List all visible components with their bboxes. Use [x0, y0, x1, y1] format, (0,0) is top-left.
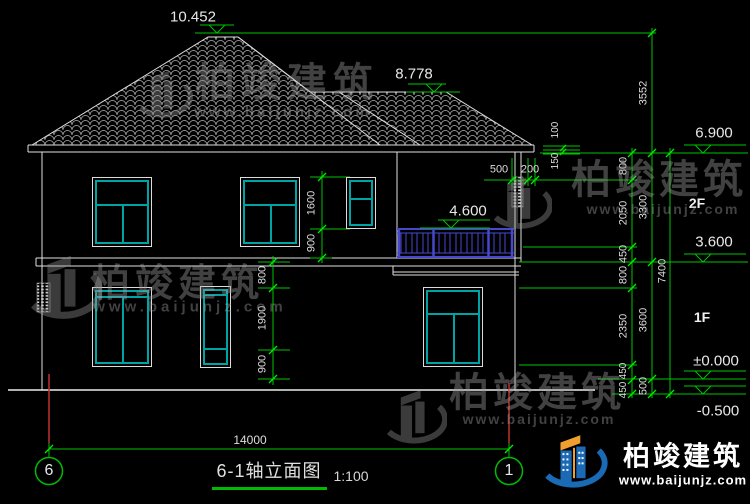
watermark-brand: 柏竣建筑: [92, 265, 264, 303]
dim-overall-span: 14000: [233, 434, 266, 446]
window-1f-right: [423, 287, 483, 367]
watermark-url: www.baijunjz.com: [194, 105, 371, 120]
footer-logo-brand: 柏竣建筑: [623, 444, 743, 471]
title-underline: [212, 487, 327, 490]
elevation-site: -0.500: [697, 404, 740, 419]
window-mullion-h: [350, 198, 372, 200]
window-mullion-v: [270, 206, 272, 242]
footer-logo-icon: [536, 432, 614, 498]
footer-logo-url: www.baijunjz.com: [619, 474, 747, 487]
watermark-url: www.baijunjz.com: [587, 202, 740, 216]
watermark-url: www.baijunjz.com: [93, 300, 286, 315]
window-mullion-h: [204, 348, 227, 350]
dim-eave-edge-0: 100: [551, 122, 561, 139]
dim-right-mid-3: 500: [639, 377, 650, 395]
window-2f-left: [92, 177, 152, 247]
watermark-brand: 柏竣建筑: [571, 160, 747, 200]
dim-window1f-2: 900: [258, 355, 269, 373]
drawing-scale: 1:100: [333, 469, 368, 483]
dim-right-mid-2: 3600: [639, 308, 650, 332]
watermark-brand: 柏竣建筑: [449, 373, 625, 413]
axis-bubble-1: 1: [505, 463, 514, 479]
watermark-brand: 柏竣建筑: [195, 63, 379, 103]
dim-right-mid-0: 3552: [639, 81, 650, 105]
elevation-eave: 6.900: [695, 126, 733, 141]
axis-bubble-6: 6: [45, 463, 54, 479]
window-mullion-v: [453, 315, 455, 362]
drawing-title: 6-1轴立面图: [216, 462, 321, 480]
dim-right-total: 7400: [658, 259, 669, 283]
window-frame: [349, 180, 373, 226]
dim-window2f-1: 900: [307, 234, 318, 252]
elevation-ridge2: 8.778: [395, 67, 433, 82]
watermark-logo-left: [24, 250, 102, 332]
watermark-logo-right: [488, 166, 552, 246]
window-mullion-v: [122, 206, 124, 242]
dim-window2f-0: 1600: [307, 191, 318, 215]
elevation-peak: 10.452: [170, 10, 216, 25]
dim-right-inner-3: 800: [619, 266, 630, 284]
dim-eave-edge-1: 150: [551, 153, 561, 170]
watermark-logo-roof: [128, 68, 198, 126]
window-2f-middle: [240, 177, 300, 247]
dim-right-inner-4: 2350: [619, 314, 630, 338]
elevation-drawing-canvas: 10.452 8.778 4.600 6.900 3.600 ±0.000 -0…: [0, 0, 750, 504]
elevation-balcony: 4.600: [449, 204, 487, 219]
watermark-url: www.baijunjz.com: [463, 412, 616, 426]
dim-right-inner-2: 450: [619, 245, 630, 263]
elevation-zero: ±0.000: [693, 354, 739, 369]
window-2f-narrow: [346, 177, 376, 229]
floor-label-1f: 1F: [694, 310, 710, 324]
elevation-floor2: 3.600: [695, 235, 733, 250]
watermark-logo-bottom: [381, 384, 447, 456]
